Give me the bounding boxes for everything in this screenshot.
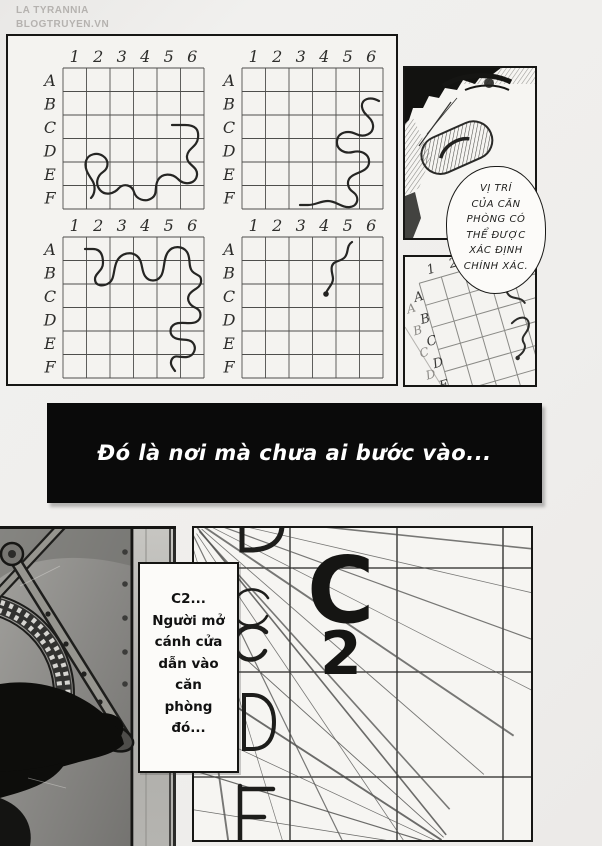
caption-line: Người mở [140,611,237,633]
svg-text:A: A [42,71,56,90]
caption-line: dẫn vào [140,654,237,676]
narration-banner: Đó là nơi mà chưa ai bước vào... [47,403,542,503]
caption-box: C2... Người mở cánh cửa dẫn vào căn phòn… [138,562,239,773]
svg-text:6: 6 [366,47,376,66]
coordinate-grid-top-right: 123456ABCDEF [216,48,386,213]
svg-text:E: E [437,377,452,385]
coordinate-grid-bottom-left: 123456ABCDEF [37,217,207,382]
watermark-line1: LA TYRANNIA [16,5,89,16]
svg-text:3: 3 [117,47,127,66]
bubble-line: PHÒNG CÓ [447,212,545,228]
big-2-label: 2 [320,619,362,689]
svg-text:A: A [221,240,235,259]
svg-text:3: 3 [296,47,306,66]
svg-text:D: D [222,310,236,329]
svg-text:1: 1 [249,47,259,66]
svg-text:A: A [221,71,235,90]
svg-text:C: C [44,287,56,306]
svg-text:5: 5 [343,216,353,235]
bubble-line: CHÍNH XÁC. [447,259,545,275]
caption-line: căn [140,675,237,697]
speech-bubble: VỊ TRÍ CỦA CĂN PHÒNG CÓ THỂ ĐƯỢC XÁC ĐỊN… [446,166,546,294]
bubble-line: THỂ ĐƯỢC [447,228,545,244]
caption-line: đó... [140,718,237,740]
svg-text:E: E [222,165,235,184]
svg-text:D: D [43,310,57,329]
svg-text:D: D [222,141,236,160]
svg-text:A: A [42,240,56,259]
svg-text:B: B [222,94,235,113]
room-panel: C2 [192,526,533,842]
svg-text:5: 5 [164,216,174,235]
svg-text:C: C [223,287,235,306]
svg-text:5: 5 [164,47,174,66]
narration-text: Đó là nơi mà chưa ai bước vào... [47,403,542,503]
svg-text:6: 6 [366,216,376,235]
svg-text:B: B [43,263,56,282]
svg-text:D: D [43,141,57,160]
watermark-line2: BLOGTRUYEN.VN [16,19,109,30]
bubble-line: CỦA CĂN [447,197,545,213]
svg-text:E: E [222,334,235,353]
bubble-line: XÁC ĐỊNH [447,243,545,259]
svg-text:B: B [43,94,56,113]
bubble-line: VỊ TRÍ [447,181,545,197]
svg-text:1: 1 [70,216,80,235]
edge-letter-C [235,627,266,660]
svg-text:4: 4 [318,216,329,235]
svg-text:5: 5 [343,47,353,66]
svg-text:2: 2 [271,216,282,235]
caption-line: C2... [140,589,237,611]
svg-text:6: 6 [187,47,197,66]
caption-line: phòng [140,697,237,719]
svg-text:2: 2 [92,47,103,66]
svg-text:4: 4 [318,47,329,66]
svg-text:E: E [43,165,56,184]
svg-text:2: 2 [92,216,103,235]
manga-page: LA TYRANNIA BLOGTRUYEN.VN 123456ABCDEF 1… [0,0,602,846]
room-artwork: C2 [194,528,531,840]
iris [484,78,494,88]
svg-text:B: B [222,263,235,282]
svg-text:1: 1 [425,262,437,279]
svg-text:F: F [43,357,56,376]
svg-text:E: E [43,334,56,353]
coordinate-grid-top-left: 123456ABCDEF [37,48,207,213]
coordinate-grid-bottom-right: 123456ABCDEF [216,217,386,382]
svg-text:4: 4 [139,47,150,66]
svg-text:2: 2 [271,47,282,66]
svg-text:6: 6 [187,216,197,235]
svg-text:3: 3 [296,216,306,235]
svg-text:F: F [222,188,235,207]
svg-text:3: 3 [117,216,127,235]
caption-line: cánh cửa [140,632,237,654]
svg-text:1: 1 [70,47,80,66]
svg-text:F: F [43,188,56,207]
svg-text:C: C [223,118,235,137]
svg-text:1: 1 [249,216,259,235]
svg-text:4: 4 [139,216,150,235]
svg-text:C: C [44,118,56,137]
svg-text:F: F [222,357,235,376]
puzzle-panel: 123456ABCDEF 123456ABCDEF 123456ABCDEF 1… [6,34,398,386]
